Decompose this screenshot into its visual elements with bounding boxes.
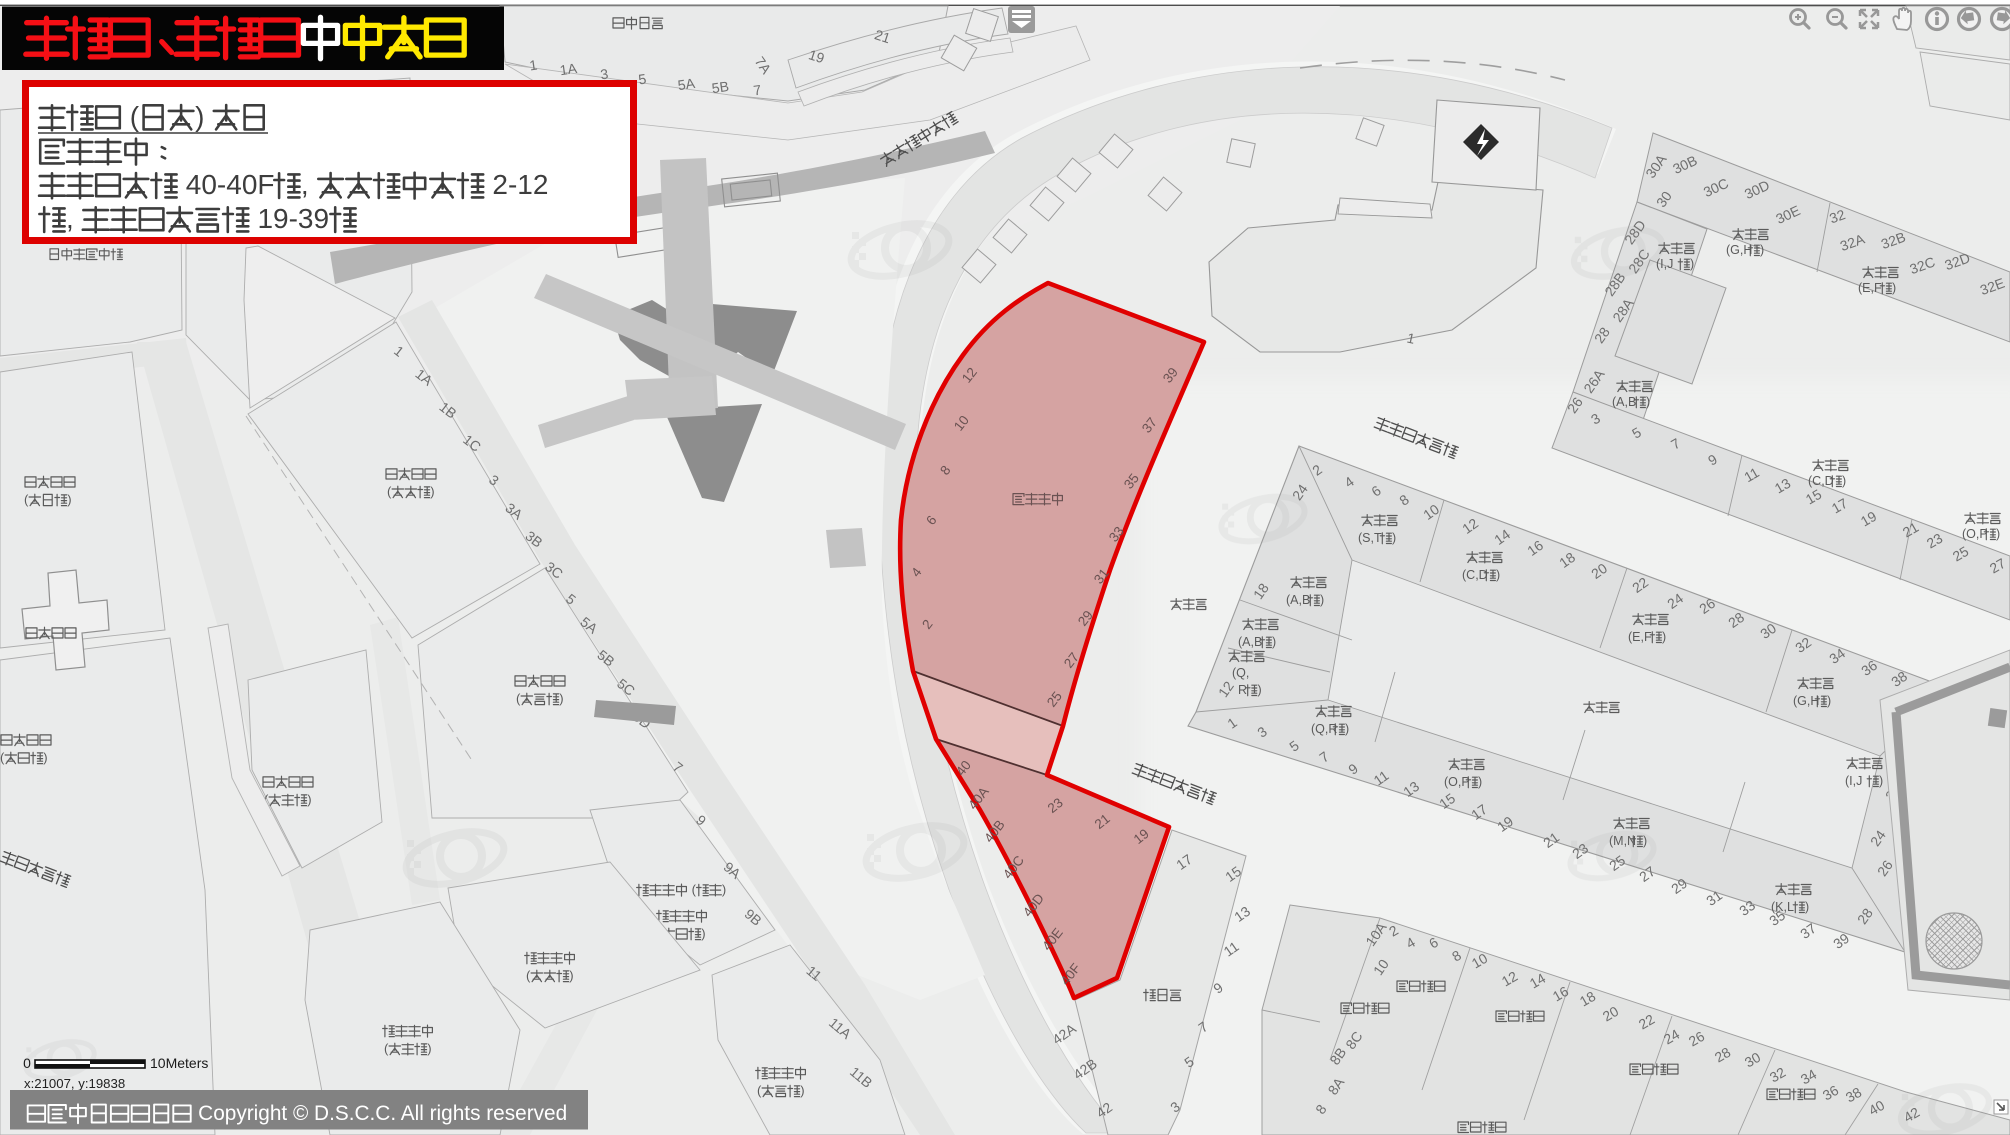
svg-text:(Q,R: (Q,R	[1311, 722, 1337, 736]
svg-text:(O,P: (O,P	[1962, 527, 1988, 541]
svg-text:): )	[307, 792, 311, 807]
svg-text:): )	[701, 926, 705, 941]
svg-text:(: (	[688, 882, 697, 897]
svg-text:): )	[195, 101, 212, 132]
svg-text:): )	[1320, 593, 1324, 607]
svg-text:2-12: 2-12	[485, 169, 549, 200]
svg-text:): )	[1690, 257, 1694, 271]
svg-text:): )	[1996, 527, 2000, 541]
svg-text:19-39: 19-39	[250, 203, 329, 234]
svg-text:): )	[1842, 474, 1846, 488]
svg-text:): )	[559, 691, 563, 706]
svg-text:R: R	[1238, 683, 1247, 697]
svg-text:(O,P: (O,P	[1444, 775, 1470, 789]
svg-text:10Meters: 10Meters	[150, 1055, 208, 1071]
svg-text:(E,F: (E,F	[1628, 630, 1652, 644]
svg-text:40-40F: 40-40F	[178, 169, 275, 200]
svg-text:5B: 5B	[711, 78, 730, 96]
svg-text:): )	[427, 1041, 431, 1056]
svg-text:): )	[1496, 568, 1500, 582]
svg-text:(Q,: (Q,	[1232, 666, 1249, 680]
svg-text:(I,J: (I,J	[1656, 257, 1673, 271]
svg-text:(A,B: (A,B	[1286, 593, 1310, 607]
svg-text:(: (	[0, 750, 5, 765]
svg-text:): )	[722, 882, 726, 897]
svg-text:): )	[1760, 243, 1764, 257]
svg-text:): )	[1662, 630, 1666, 644]
svg-text:(: (	[757, 1083, 762, 1098]
svg-text:): )	[1478, 775, 1482, 789]
svg-text:(S,T: (S,T	[1358, 531, 1382, 545]
svg-text:1A: 1A	[559, 60, 579, 78]
svg-text:): )	[1646, 395, 1650, 409]
svg-text:): )	[1892, 281, 1896, 295]
svg-text:Copyright © D.S.C.C. All right: Copyright © D.S.C.C. All rights reserved	[192, 1102, 567, 1125]
svg-text:): )	[43, 750, 47, 765]
svg-text:(: (	[516, 691, 521, 706]
svg-text:x:21007, y:19838: x:21007, y:19838	[24, 1076, 125, 1091]
svg-text:): )	[430, 484, 434, 499]
svg-text:): )	[569, 968, 573, 983]
svg-text:): )	[1879, 774, 1883, 788]
svg-text:(A,B: (A,B	[1612, 395, 1636, 409]
svg-text:): )	[1272, 635, 1276, 649]
svg-text:): )	[1805, 900, 1809, 914]
svg-text:(C,D: (C,D	[1462, 568, 1488, 582]
svg-text:,: ,	[301, 169, 317, 200]
svg-text:0: 0	[23, 1055, 31, 1071]
svg-text:): )	[800, 1083, 804, 1098]
svg-text:): )	[1827, 694, 1831, 708]
svg-text:(: (	[384, 1041, 389, 1056]
svg-text:(G,H: (G,H	[1726, 243, 1752, 257]
svg-text:): )	[1345, 722, 1349, 736]
svg-text:(: (	[387, 484, 392, 499]
svg-text:,: ,	[66, 203, 82, 234]
svg-text:(C,D: (C,D	[1808, 474, 1834, 488]
svg-text:(E,F: (E,F	[1858, 281, 1882, 295]
svg-text:(: (	[526, 968, 531, 983]
svg-text:): )	[1392, 531, 1396, 545]
svg-text:(A,B: (A,B	[1238, 635, 1262, 649]
svg-text:(G,H: (G,H	[1793, 694, 1819, 708]
svg-text:(: (	[24, 492, 29, 507]
svg-text:): )	[67, 492, 71, 507]
svg-text:): )	[1258, 683, 1262, 697]
svg-text:5A: 5A	[677, 75, 697, 93]
svg-text:(: (	[122, 101, 140, 132]
svg-text:(I,J: (I,J	[1845, 774, 1862, 788]
